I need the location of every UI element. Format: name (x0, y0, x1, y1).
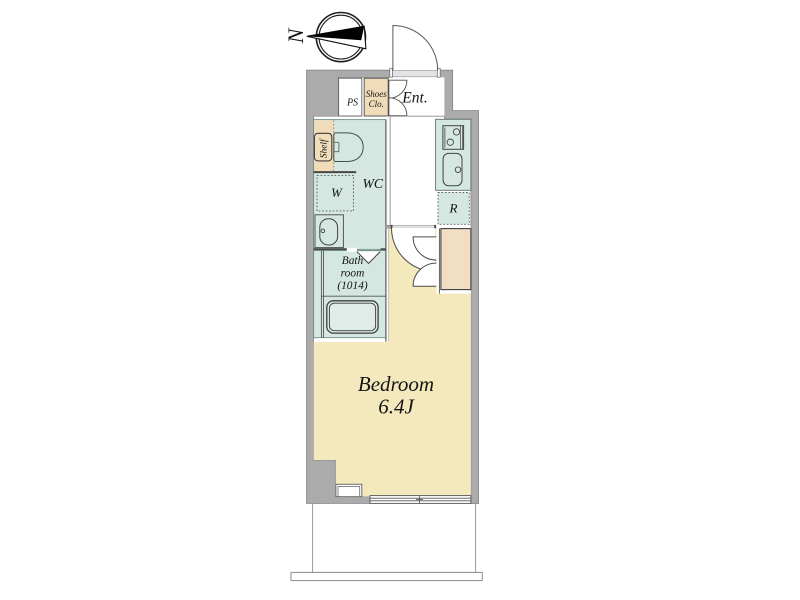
svg-text:Shelf: Shelf (319, 138, 330, 158)
svg-text:(1014): (1014) (337, 280, 368, 292)
svg-text:6.4J: 6.4J (378, 395, 415, 419)
svg-text:Clo.: Clo. (369, 99, 384, 109)
svg-text:PS: PS (346, 97, 358, 108)
svg-text:Ent.: Ent. (401, 90, 427, 107)
svg-text:Bath: Bath (342, 255, 364, 267)
svg-text:N: N (283, 27, 308, 44)
svg-text:R: R (449, 200, 458, 215)
svg-text:WC: WC (362, 176, 383, 191)
svg-text:room: room (341, 267, 365, 279)
svg-text:Shoes: Shoes (366, 89, 387, 99)
svg-text:Bedroom: Bedroom (358, 372, 434, 396)
svg-text:W: W (331, 186, 343, 200)
